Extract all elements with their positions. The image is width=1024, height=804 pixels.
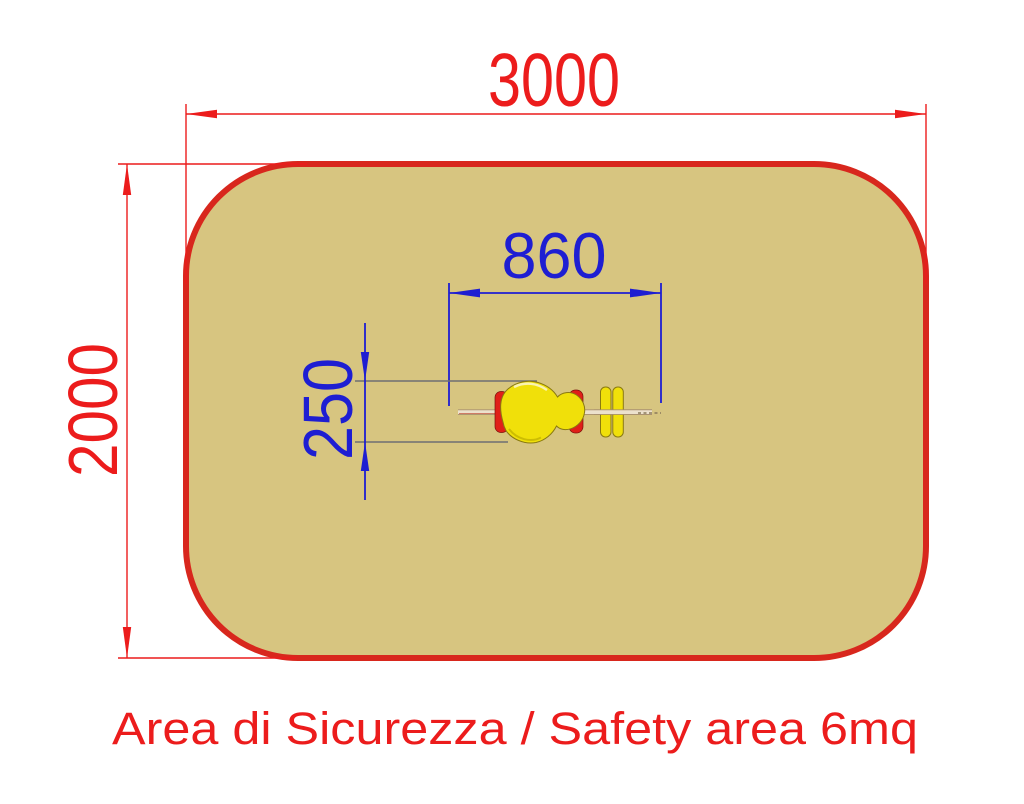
dim-2000-label: 2000 [54,343,132,477]
dim-3000-label: 3000 [488,38,620,122]
dim-2000-arrow-bottom-icon [123,627,131,658]
dim-250-label: 250 [289,358,367,460]
dim-2000-arrow-top-icon [123,164,131,195]
dim-3000-arrow-right-icon [895,110,926,118]
drawing-canvas: 3000 2000 860 250 [0,0,1024,804]
safety-area-drawing: 3000 2000 860 250 [0,0,1024,804]
dim-860-label: 860 [502,219,607,292]
dim-3000-arrow-left-icon [186,110,217,118]
caption-label: Area di Sicurezza / Safety area 6mq [112,703,918,754]
